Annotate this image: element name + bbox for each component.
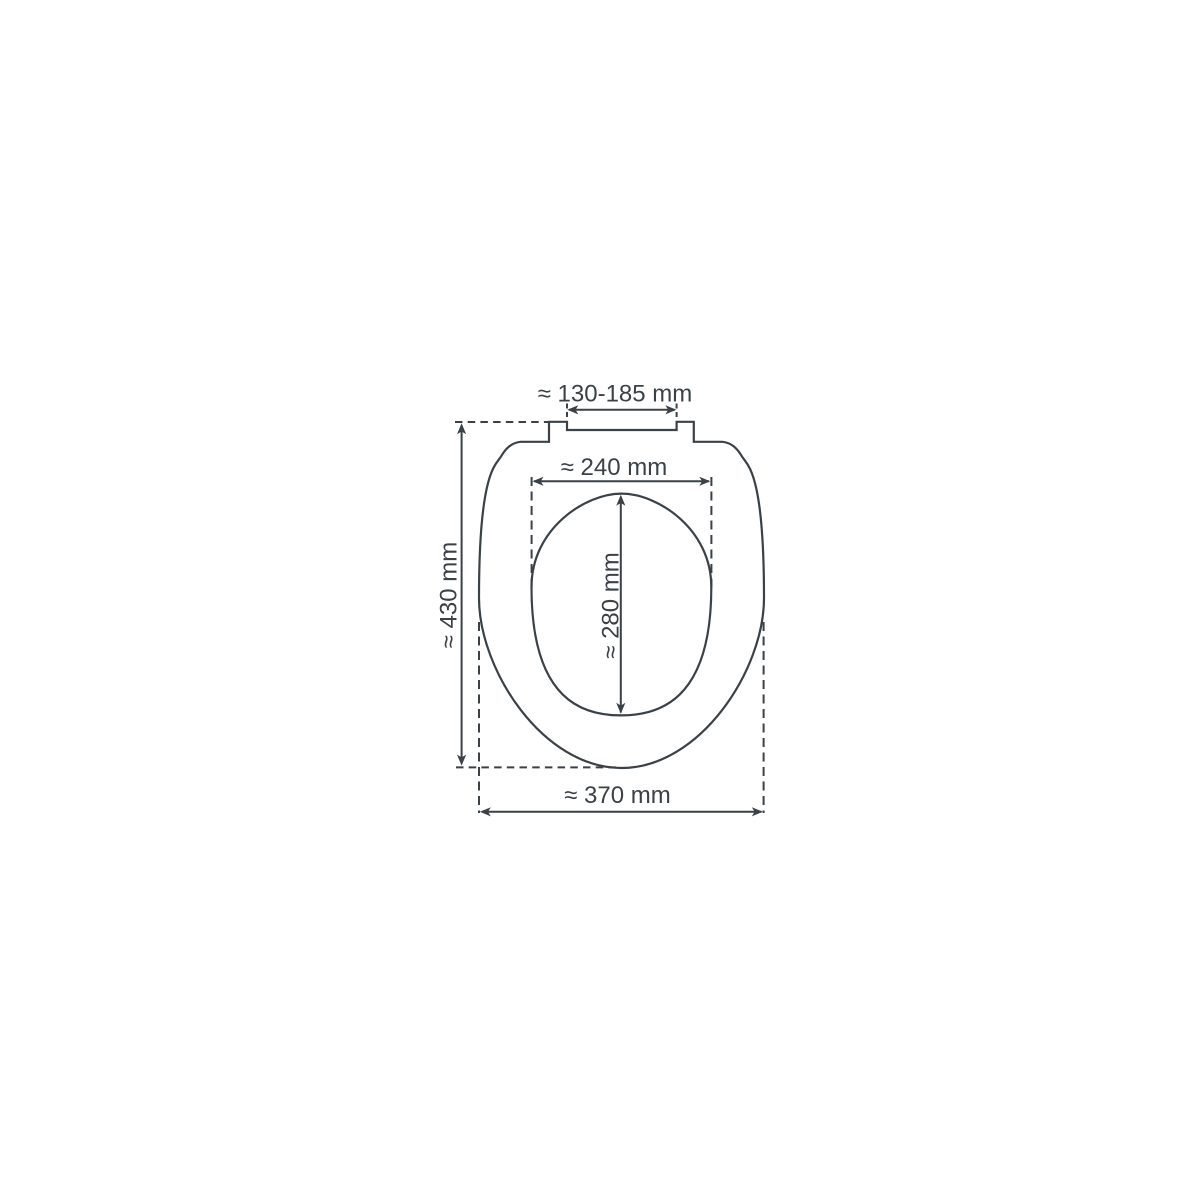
svg-text:≈ 240 mm: ≈ 240 mm xyxy=(561,454,668,481)
svg-text:≈ 280 mm: ≈ 280 mm xyxy=(598,552,625,659)
svg-text:≈ 370 mm: ≈ 370 mm xyxy=(564,782,671,809)
svg-text:≈ 430 mm: ≈ 430 mm xyxy=(435,542,462,649)
svg-text:≈ 130-185 mm: ≈ 130-185 mm xyxy=(538,381,693,408)
